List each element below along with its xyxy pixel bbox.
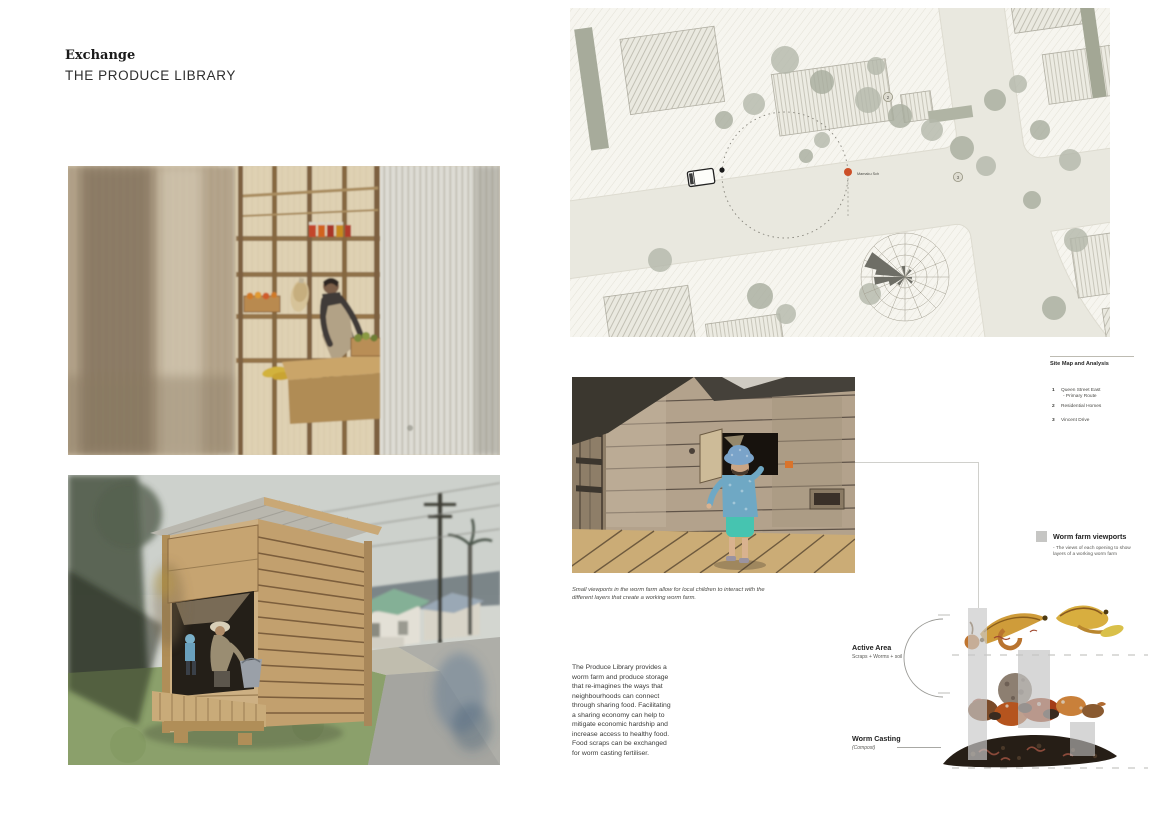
viewport-bar-3 bbox=[1070, 722, 1095, 756]
interior-render-figure bbox=[68, 166, 500, 455]
legend-item-1: 1 Queen Street East - Primary Route bbox=[1052, 388, 1132, 400]
library-structure-plan bbox=[687, 168, 715, 186]
active-area-bracket bbox=[904, 619, 943, 697]
site-marker-dot bbox=[844, 168, 852, 176]
presentation-board: Exchange THE PRODUCE LIBRARY bbox=[0, 0, 1165, 826]
exterior-render-figure bbox=[68, 475, 500, 765]
map-marker-2: 2 bbox=[883, 92, 892, 101]
legend-item-2: 2 Residential Homes bbox=[1052, 404, 1132, 410]
connector-line-horizontal bbox=[855, 462, 979, 463]
worm-farm-layers-diagram bbox=[900, 590, 1165, 790]
legend-item-3: 3 Vincent Drive bbox=[1052, 418, 1132, 424]
polycarb-panel-left bbox=[68, 166, 234, 455]
page-subtitle: THE PRODUCE LIBRARY bbox=[65, 68, 236, 83]
figure-caption: Small viewports in the worm farm allow f… bbox=[572, 587, 772, 603]
worm-casting-leader-line bbox=[897, 747, 941, 748]
active-area-sublabel: Scraps + Worms + soil bbox=[852, 654, 902, 660]
food-scraps-layer bbox=[965, 605, 1125, 649]
worm-farm-viewports-note: - The views of each opening to show laye… bbox=[1053, 546, 1135, 559]
interior-scene bbox=[218, 166, 394, 455]
connector-line-vertical bbox=[978, 462, 979, 608]
closed-viewport bbox=[810, 489, 844, 509]
radius-anchor-dot bbox=[719, 167, 724, 172]
site-map-figure: Mamaku Sch 2 3 bbox=[570, 8, 1110, 337]
wind-rose-chart bbox=[861, 233, 949, 321]
legend-title: Site Map and Analysis bbox=[1050, 361, 1109, 367]
project-description: The Produce Library provides a worm farm… bbox=[572, 663, 672, 758]
map-marker-3: 3 bbox=[953, 172, 962, 181]
viewport-render-figure bbox=[572, 377, 855, 573]
orange-sticker bbox=[785, 461, 793, 468]
worm-casting-label: Worm Casting bbox=[852, 734, 901, 743]
worm-farm-viewports-label: Worm farm viewports bbox=[1053, 532, 1126, 541]
legend-divider bbox=[1050, 356, 1134, 357]
worm-casting-sublabel: (Compost) bbox=[852, 745, 875, 751]
polycarb-panel-right bbox=[380, 166, 500, 455]
page-title: Exchange bbox=[65, 48, 135, 63]
viewport-bar-1 bbox=[968, 608, 987, 760]
viewport-swatch bbox=[1036, 531, 1047, 542]
site-marker-label: Mamaku Sch bbox=[857, 172, 879, 176]
viewport-bar-2 bbox=[1018, 650, 1050, 728]
active-area-label: Active Area bbox=[852, 643, 891, 652]
